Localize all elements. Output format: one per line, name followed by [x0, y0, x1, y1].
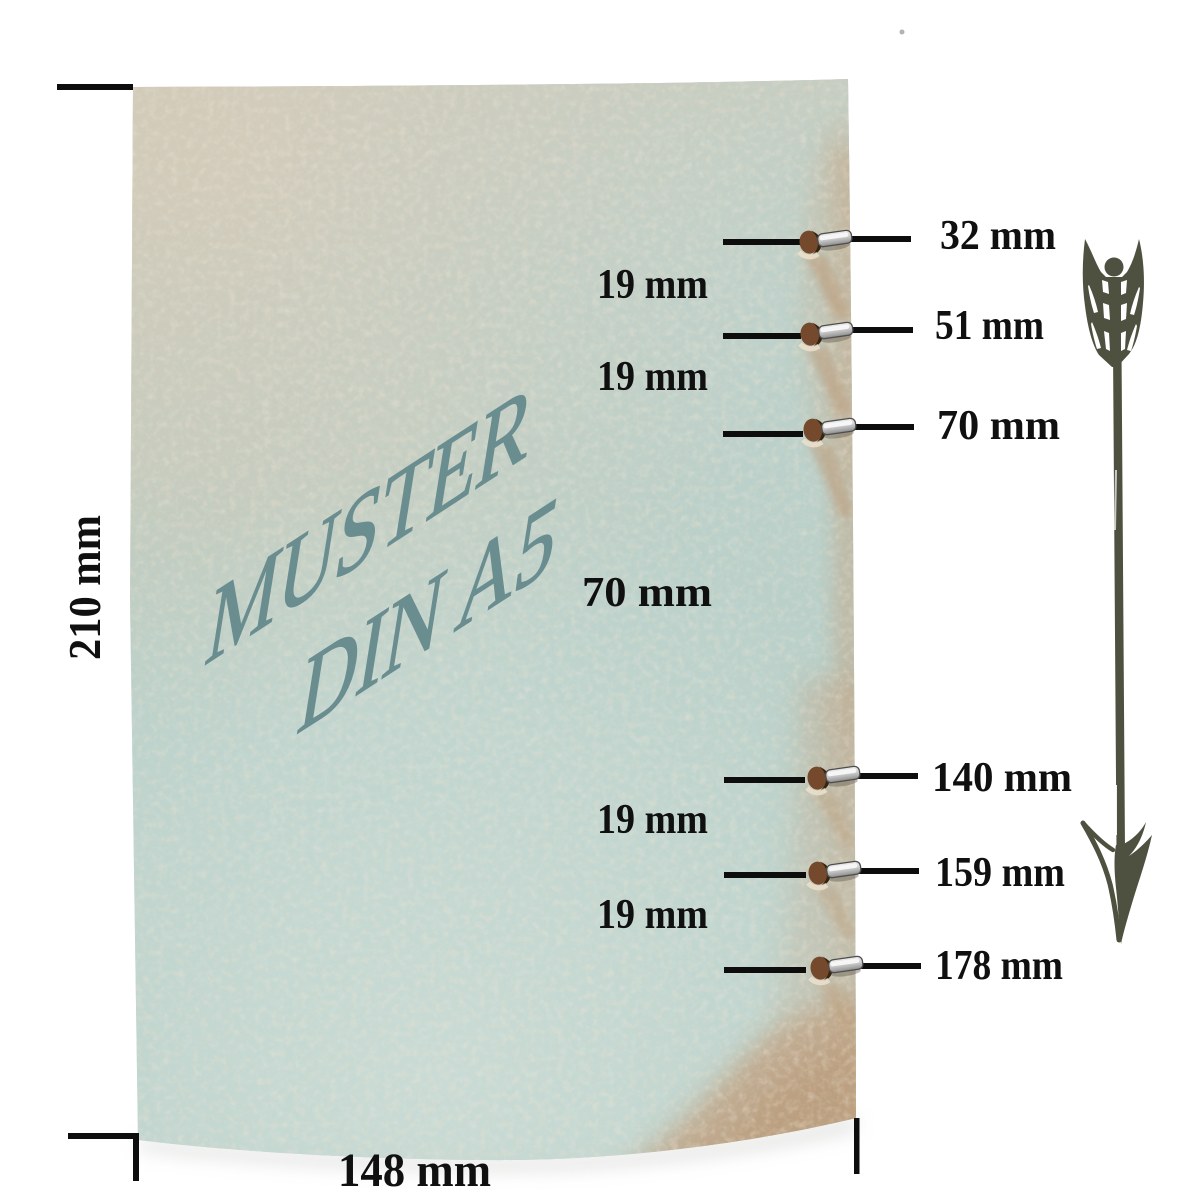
svg-text:148 mm: 148 mm — [338, 1144, 491, 1197]
svg-text:51 mm: 51 mm — [935, 303, 1044, 349]
svg-text:159 mm: 159 mm — [935, 850, 1065, 896]
svg-text:19 mm: 19 mm — [597, 354, 708, 400]
svg-text:140 mm: 140 mm — [932, 755, 1072, 801]
svg-text:178 mm: 178 mm — [935, 943, 1063, 989]
svg-text:70 mm: 70 mm — [937, 403, 1060, 449]
svg-text:19 mm: 19 mm — [597, 797, 708, 843]
svg-text:32 mm: 32 mm — [940, 213, 1056, 259]
svg-text:210 mm: 210 mm — [60, 515, 110, 660]
svg-text:19 mm: 19 mm — [597, 262, 708, 308]
svg-text:19 mm: 19 mm — [597, 892, 708, 938]
svg-text:70 mm: 70 mm — [582, 570, 712, 616]
